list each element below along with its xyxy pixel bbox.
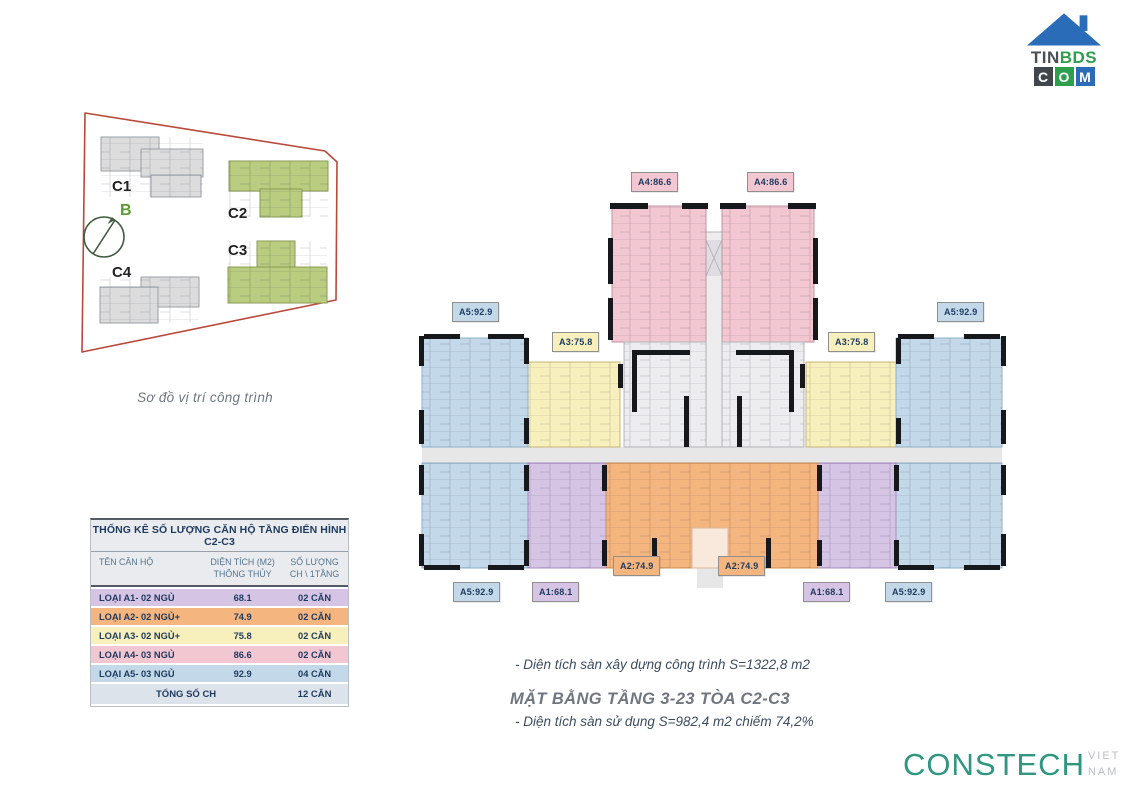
area-label-a3-right: A3:75.8 [828, 332, 875, 352]
row-a4-count: 02 CĂN [281, 650, 348, 660]
tinbds-logo-text: TINBDS [1016, 49, 1112, 66]
total-count: 12 CĂN [281, 689, 348, 700]
row-a5-count: 04 CĂN [281, 669, 348, 679]
apartment-a5-lower-right [896, 463, 1002, 568]
tower-bridge [706, 240, 722, 276]
table-row-a2: LOẠI A2- 02 NGỦ+ 74.9 02 CĂN [91, 608, 348, 625]
floor-area-notes: - Diện tích sàn xây dựng công trình S=13… [515, 617, 814, 750]
row-a3-name: LOẠI A3- 02 NGỦ+ [91, 631, 204, 641]
area-label-a4-right: A4:86.6 [747, 172, 794, 192]
area-label-a5-upper-right: A5:92.9 [937, 302, 984, 322]
site-label-c2: C2 [228, 205, 247, 222]
apartment-a3-upper-right [806, 362, 896, 447]
logo-com-blocks: C O M [1016, 67, 1112, 86]
table-row-a5: LOẠI A5- 03 NGỦ 92.9 04 CĂN [91, 665, 348, 682]
constech-name: CONSTECH [903, 750, 1085, 780]
row-a1-name: LOẠI A1- 02 NGỦ [91, 593, 204, 603]
note-construction-area: - Diện tích sàn xây dựng công trình S=13… [515, 655, 814, 674]
row-a2-name: LOẠI A2- 02 NGỦ+ [91, 612, 204, 622]
row-a4-area: 86.6 [204, 650, 281, 660]
row-a1-area: 68.1 [204, 593, 281, 603]
row-a5-area: 92.9 [204, 669, 281, 679]
apartment-a3-upper-left [528, 362, 620, 447]
table-row-a1: LOẠI A1- 02 NGỦ 68.1 02 CĂN [91, 589, 348, 606]
apartment-a1-left [528, 463, 606, 568]
constech-country: VIET NAM [1088, 748, 1125, 780]
col-header-name: TÊN CĂN HỘ [91, 556, 204, 580]
logo-block-c: C [1034, 67, 1053, 86]
col-header-count-line2: CH \ 1TẦNG [281, 568, 348, 580]
area-label-a5-lower-right: A5:92.9 [885, 582, 932, 602]
row-a4-name: LOẠI A4- 03 NGỦ [91, 650, 204, 660]
site-label-c1: C1 [112, 178, 131, 195]
note-usable-area: - Diện tích sàn sử dụng S=982,4 m2 chiếm… [515, 712, 814, 731]
col-header-area: DIỆN TÍCH (M2) THÔNG THỦY [204, 556, 281, 580]
col-header-count: SỐ LƯỢNG CH \ 1TẦNG [281, 556, 348, 580]
floor-plan-caption: MẶT BẰNG TẦNG 3-23 TÒA C2-C3 [505, 690, 795, 709]
col-header-count-line1: SỐ LƯỢNG [281, 556, 348, 568]
area-label-a2-right: A2:74.9 [718, 556, 765, 576]
row-a1-count: 02 CĂN [281, 593, 348, 603]
apartment-a2-pair [606, 463, 818, 568]
logo-text-tin: TIN [1031, 48, 1060, 67]
logo-block-m: M [1076, 67, 1095, 86]
row-a3-area: 75.8 [204, 631, 281, 641]
row-a2-area: 74.9 [204, 612, 281, 622]
table-header-row: TÊN CĂN HỘ DIỆN TÍCH (M2) THÔNG THỦY SỐ … [91, 552, 348, 587]
logo-block-o: O [1055, 67, 1074, 86]
table-row-a4: LOẠI A4- 03 NGỦ 86.6 02 CĂN [91, 646, 348, 663]
row-a2-count: 02 CĂN [281, 612, 348, 622]
row-a5-name: LOẠI A5- 03 NGỦ [91, 669, 204, 679]
apartment-a4-left [612, 206, 706, 342]
constech-logo: CONSTECH VIET NAM [903, 748, 1125, 780]
area-label-a1-left: A1:68.1 [532, 582, 579, 602]
floor-plan-drawing [415, 195, 1015, 600]
col-header-area-line2: THÔNG THỦY [204, 568, 281, 580]
house-roof-icon [1025, 8, 1103, 48]
area-label-a1-right: A1:68.1 [803, 582, 850, 602]
apartment-a5-upper-left [422, 338, 528, 447]
site-label-c3: C3 [228, 242, 247, 259]
apartment-a1-right [818, 463, 896, 568]
site-plan-caption: Sơ đồ vị trí công trình [95, 390, 315, 405]
col-header-area-line1: DIỆN TÍCH (M2) [204, 556, 281, 568]
table-row-a3: LOẠI A3- 02 NGỦ+ 75.8 02 CĂN [91, 627, 348, 644]
row-a3-count: 02 CĂN [281, 631, 348, 641]
area-label-a4-left: A4:86.6 [631, 172, 678, 192]
area-label-a2-left: A2:74.9 [613, 556, 660, 576]
area-label-a5-lower-left: A5:92.9 [453, 582, 500, 602]
area-label-a3-left: A3:75.8 [552, 332, 599, 352]
total-label: TỔNG SỐ CH [91, 689, 281, 700]
apartment-a4-right [722, 206, 814, 342]
tinbds-logo: TINBDS C O M [1016, 8, 1112, 86]
building-c4-shape [100, 277, 199, 323]
site-label-c4: C4 [112, 264, 131, 281]
apartment-a5-upper-right [896, 338, 1002, 447]
table-title: THỐNG KÊ SỐ LƯỢNG CĂN HỘ TẦNG ĐIỂN HÌNH … [91, 520, 348, 552]
site-plan-map [60, 100, 360, 370]
table-total-row: TỔNG SỐ CH 12 CĂN [91, 684, 348, 704]
logo-text-bds: BDS [1060, 48, 1097, 67]
apartment-statistics-table: THỐNG KÊ SỐ LƯỢNG CĂN HỘ TẦNG ĐIỂN HÌNH … [90, 518, 349, 707]
corridor [422, 447, 1002, 463]
area-label-a5-upper-left: A5:92.9 [452, 302, 499, 322]
apartment-a5-lower-left [422, 463, 528, 568]
compass-north-label: B [120, 202, 132, 220]
